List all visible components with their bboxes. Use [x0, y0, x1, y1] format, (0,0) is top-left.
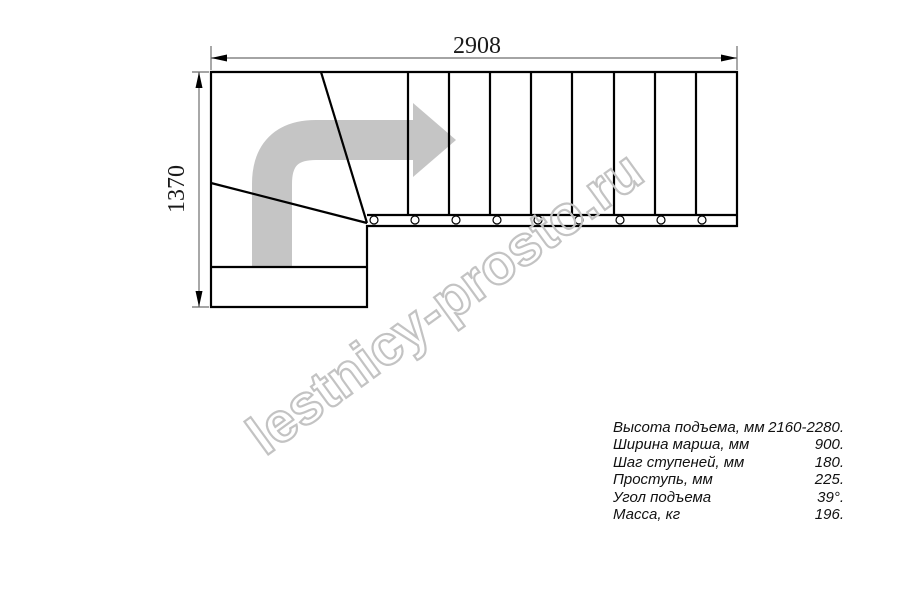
spec-label: Масса, кг [613, 506, 680, 523]
fastener-circle [411, 216, 419, 224]
spec-label: Высота подъема, мм [613, 419, 765, 436]
fastener-circle [657, 216, 665, 224]
dim-arrow-right [721, 55, 737, 62]
spec-value: 2160-2280. [768, 419, 844, 436]
spec-row: Масса, кг 196. [613, 506, 844, 523]
spec-label: Шаг ступеней, мм [613, 454, 744, 471]
spec-row: Высота подъема, мм 2160-2280. [613, 419, 844, 436]
dim-arrow-down [196, 291, 203, 307]
spec-value: 39°. [817, 489, 844, 506]
spec-label: Угол подъема [613, 489, 711, 506]
spec-label: Проступь, мм [613, 471, 713, 488]
fastener-circle [370, 216, 378, 224]
width-dimension-label: 2908 [453, 33, 501, 59]
spec-value: 900. [815, 436, 844, 453]
spec-row: Угол подъема 39°. [613, 489, 844, 506]
spec-value: 180. [815, 454, 844, 471]
fastener-circle [452, 216, 460, 224]
spec-value: 225. [815, 471, 844, 488]
fastener-circle [616, 216, 624, 224]
direction-arrow-icon [272, 103, 456, 266]
dim-arrow-left [211, 55, 227, 62]
spec-label: Ширина марша, мм [613, 436, 749, 453]
spec-row: Шаг ступеней, мм 180. [613, 454, 844, 471]
fastener-circle [698, 216, 706, 224]
drawing-canvas: 2908 1370 lestnicy-prosto.ru Высота подъ… [0, 0, 900, 600]
spec-value: 196. [815, 506, 844, 523]
dim-arrow-up [196, 72, 203, 88]
spec-table: Высота подъема, мм 2160-2280. Ширина мар… [613, 419, 844, 523]
watermark-text: lestnicy-prosto.ru [235, 138, 654, 466]
spec-row: Ширина марша, мм 900. [613, 436, 844, 453]
spec-row: Проступь, мм 225. [613, 471, 844, 488]
height-dimension-label: 1370 [164, 165, 190, 213]
